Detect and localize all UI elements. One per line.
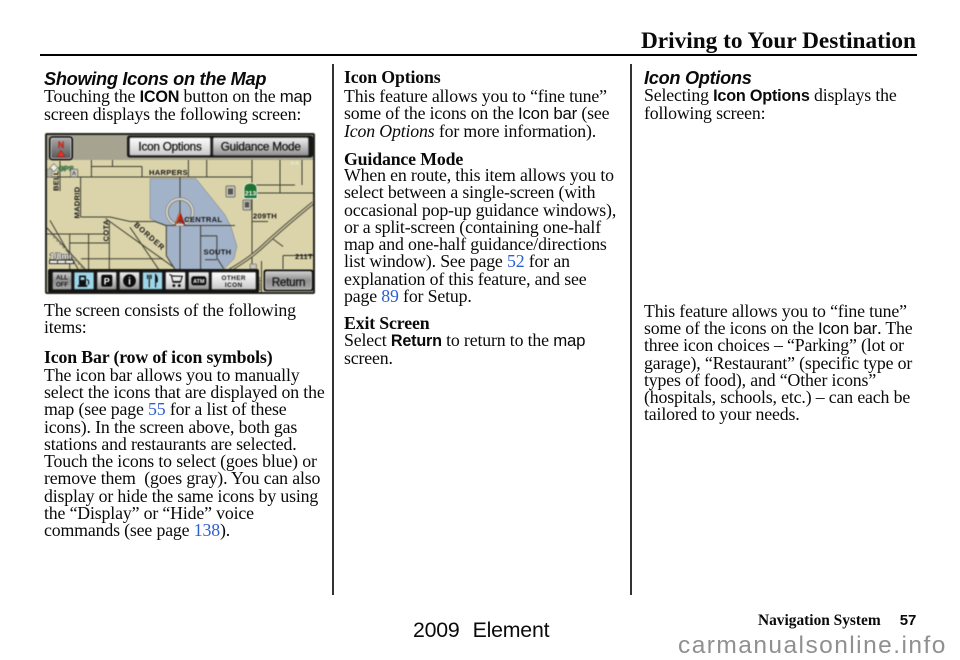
svg-text:ATM: ATM: [193, 279, 205, 285]
svg-text:BELL: BELL: [52, 170, 61, 191]
svg-text:COTA: COTA: [102, 219, 111, 241]
svg-text:ICON: ICON: [225, 282, 243, 289]
svg-text:OTHER: OTHER: [222, 275, 246, 282]
svg-text:1/8mi: 1/8mi: [50, 251, 72, 261]
svg-text:HARPERS: HARPERS: [149, 168, 188, 177]
svg-text:Guidance Mode: Guidance Mode: [221, 141, 301, 154]
svg-text:ALL: ALL: [56, 275, 68, 282]
svg-text:MADRID: MADRID: [73, 186, 82, 218]
svg-text:E.G: E.G: [291, 161, 299, 166]
svg-text:CENTRAL: CENTRAL: [184, 215, 222, 224]
svg-text:211TH: 211TH: [295, 252, 315, 261]
svg-text:213: 213: [245, 191, 257, 198]
svg-text:209TH: 209TH: [253, 212, 277, 221]
svg-text:P: P: [104, 276, 110, 286]
svg-text:OFF: OFF: [56, 282, 69, 289]
svg-text:i: i: [128, 277, 131, 288]
svg-text:Return: Return: [272, 277, 305, 289]
svg-text:SOUTH: SOUTH: [204, 248, 232, 257]
svg-text:N: N: [58, 140, 64, 150]
svg-text:Icon Options: Icon Options: [138, 141, 202, 154]
